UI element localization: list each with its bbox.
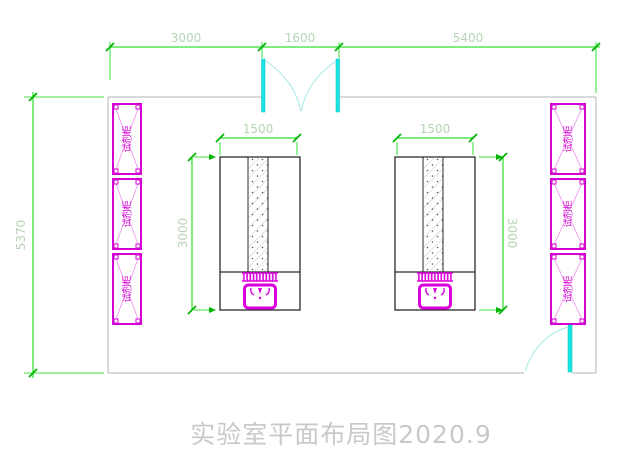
lab-bench-right [395,157,475,310]
door-swing-arc [525,327,568,371]
dimension-room-height: 5370 [14,92,104,378]
cabinet-label: 试剂柜 [121,275,133,302]
sink-symbol [242,273,278,308]
door-swing-arc [302,61,337,111]
reagent-cabinet: 试剂柜 [113,104,141,174]
dim-bench-left-height-label: 3000 [176,218,190,249]
dim-top-left-label: 3000 [171,31,202,45]
cabinet-label: 试剂柜 [121,200,133,227]
reagent-cabinet: 试剂柜 [113,254,141,324]
dimension-bench-right-height: 3000 [479,153,519,314]
door-leaf [568,325,572,372]
floorplan-canvas: 3000 1600 5400 5370 试剂柜 试剂柜 [0,0,619,469]
single-door-bottom-right [525,325,572,372]
dimension-bench-left-height: 3000 [176,153,216,314]
dim-top-right-label: 5400 [453,31,484,45]
dimension-top-chain: 3000 1600 5400 [106,31,600,93]
sink-symbol [417,273,453,308]
reagent-cabinet: 试剂柜 [113,179,141,249]
dimension-bench-left-width: 1500 [216,122,301,155]
dim-bench-right-height-label: 3000 [505,218,519,249]
lab-bench-left [220,157,300,310]
reagent-cabinet: 试剂柜 [551,179,585,249]
door-leaf-left [262,59,266,112]
dimension-bench-right-width: 1500 [393,122,477,155]
reagent-cabinet: 试剂柜 [551,254,585,324]
dim-room-height-label: 5370 [14,220,28,251]
drawing-title: 实验室平面布局图2020.9 [190,420,491,449]
cabinet-column-right: 试剂柜 试剂柜 试剂柜 [551,104,585,324]
dim-top-middle-label: 1600 [285,31,316,45]
cad-floorplan-view: 3000 1600 5400 5370 试剂柜 试剂柜 [0,0,619,469]
cabinet-label: 试剂柜 [562,125,574,152]
cabinet-label: 试剂柜 [562,275,574,302]
double-door-top [262,59,340,112]
reagent-cabinet: 试剂柜 [551,104,585,174]
cabinet-label: 试剂柜 [562,200,574,227]
dim-bench-right-width-label: 1500 [420,122,451,136]
dim-bench-left-width-label: 1500 [243,122,274,136]
door-swing-arc [266,61,301,111]
cabinet-label: 试剂柜 [121,125,133,152]
cabinet-column-left: 试剂柜 试剂柜 试剂柜 [113,104,141,324]
door-leaf-right [336,59,340,112]
